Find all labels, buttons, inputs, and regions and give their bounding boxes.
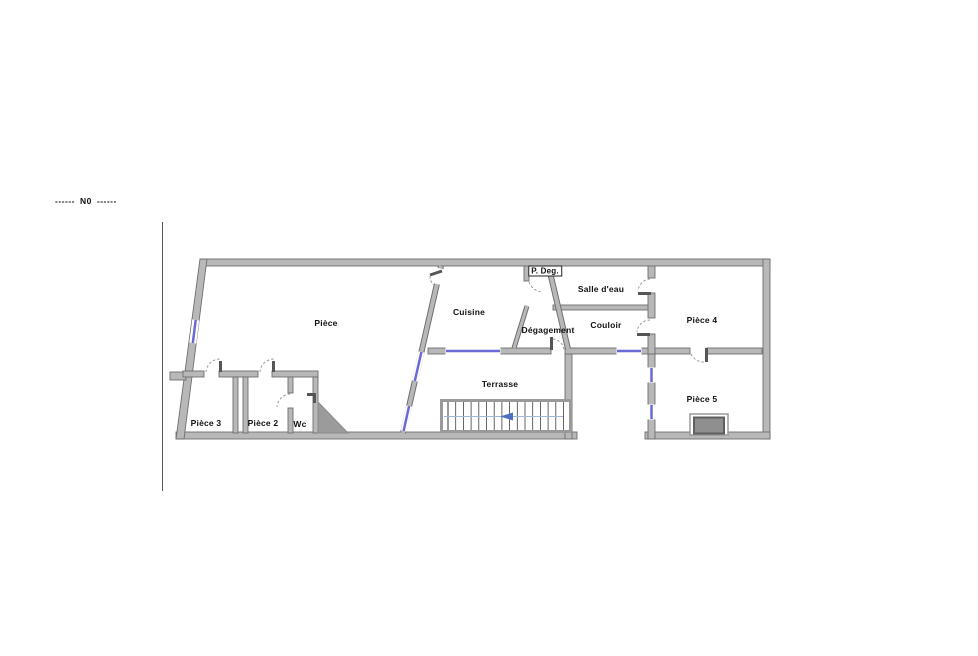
room-label-piece-4: Pièce 4 — [687, 315, 718, 325]
room-label-piece-5: Pièce 5 — [687, 394, 718, 404]
room-label-couloir: Couloir — [590, 320, 621, 330]
staircase — [442, 401, 571, 432]
room-label-p-deg: P. Deg. — [528, 266, 562, 277]
room-label-piece-2: Pièce 2 — [248, 418, 279, 428]
room-label-piece: Pièce — [314, 318, 337, 328]
room-label-terrasse: Terrasse — [482, 379, 518, 389]
chimney — [690, 414, 728, 435]
room-label-piece-3: Pièce 3 — [191, 418, 222, 428]
room-label-salle-deau: Salle d'eau — [578, 284, 624, 294]
under-stairs-triangle — [318, 402, 348, 433]
room-label-cuisine: Cuisine — [453, 307, 485, 317]
room-label-degagement: Dégagement — [521, 325, 574, 335]
floor-plan-drawing — [0, 0, 978, 656]
floor-plan-page: ------ N0 ------ — [0, 0, 978, 656]
doors — [206, 271, 708, 407]
room-label-wc: Wc — [293, 419, 306, 429]
